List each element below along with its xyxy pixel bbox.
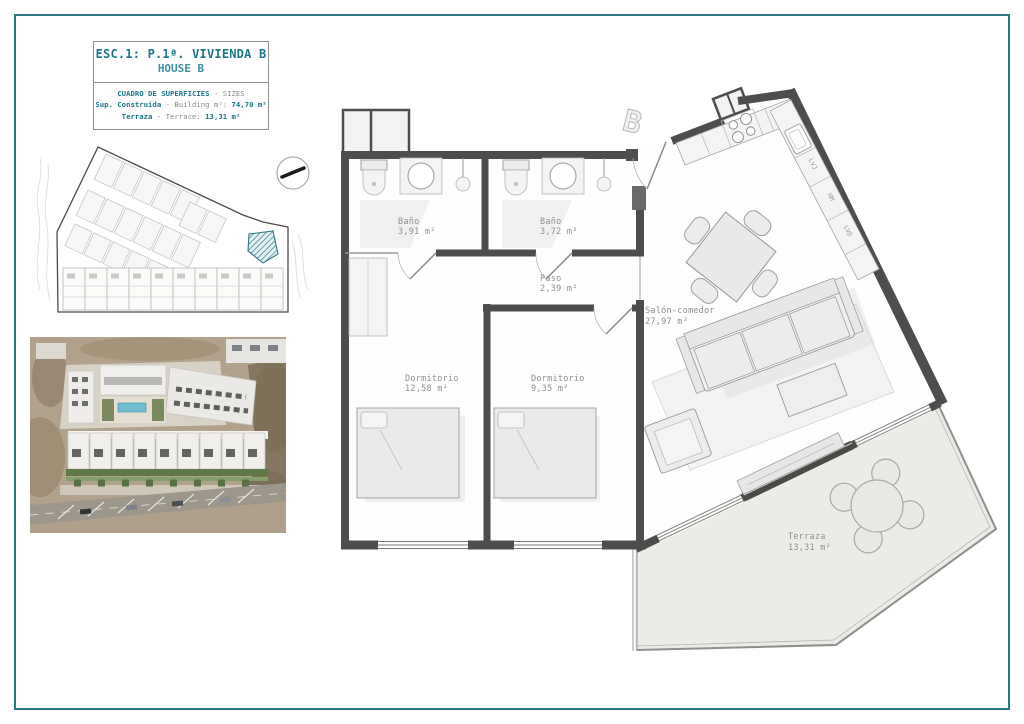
room-label-paso: Paso bbox=[540, 274, 561, 284]
room-area-terraza: 13,31 m² bbox=[788, 543, 831, 553]
room-label-dormitorio-1: Dormitorio bbox=[405, 374, 459, 384]
unit-marker: B bbox=[619, 104, 645, 142]
room-area-paso: 2,39 m² bbox=[540, 284, 578, 294]
room-area-salon: 27,97 m² bbox=[645, 317, 688, 327]
bed-dormitorio-2 bbox=[494, 408, 596, 498]
room-label-bano-2: Baño bbox=[540, 217, 561, 227]
room-area-dormitorio-2: 9,35 m² bbox=[531, 384, 569, 394]
wardrobe-dormitorio-1 bbox=[349, 258, 387, 336]
room-label-salon: Salón-comedor bbox=[645, 305, 715, 316]
room-label-bano-1: Baño bbox=[398, 217, 419, 227]
room-area-bano-2: 3,72 m² bbox=[540, 227, 578, 237]
shower-head-2 bbox=[597, 177, 611, 191]
room-area-dormitorio-1: 12,58 m² bbox=[405, 384, 448, 394]
floor-plan: LVJ HM LVD bbox=[0, 0, 1024, 724]
plan-sheet: ESC.1: P.1ª. VIVIENDA B HOUSE B CUADRO D… bbox=[0, 0, 1024, 724]
room-label-terraza: Terraza bbox=[788, 532, 826, 542]
room-area-bano-1: 3,91 m² bbox=[398, 227, 436, 237]
room-label-dormitorio-2: Dormitorio bbox=[531, 374, 585, 384]
bed-dormitorio-1 bbox=[357, 408, 459, 498]
shower-head-1 bbox=[456, 177, 470, 191]
